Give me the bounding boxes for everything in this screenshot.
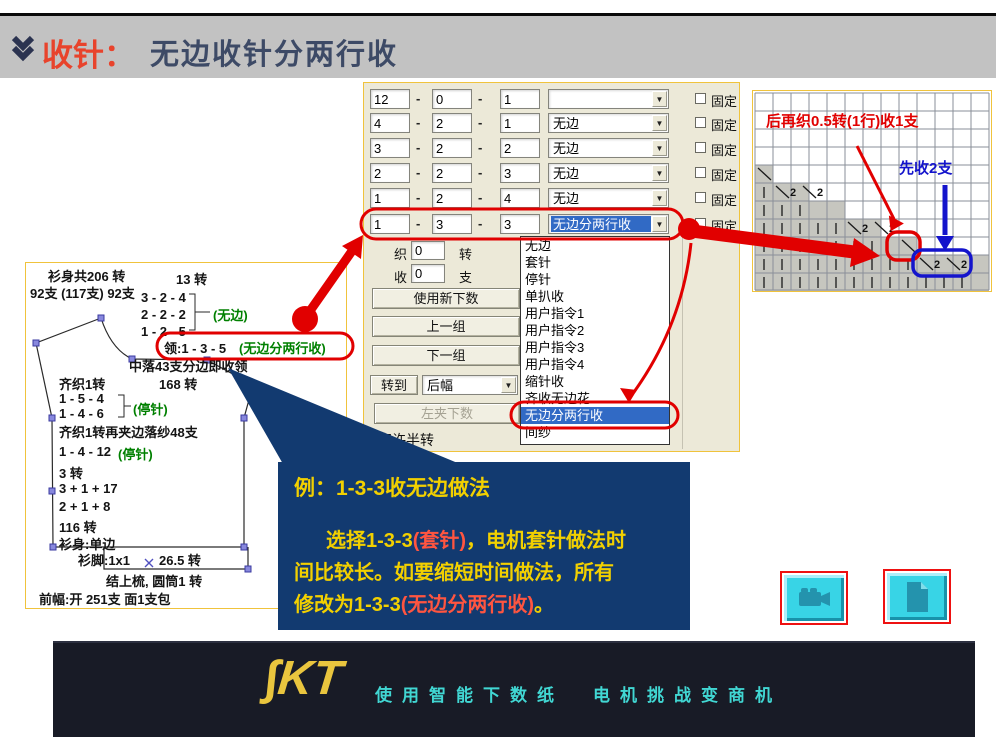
callout-text: 修改为1-3-3 — [294, 594, 401, 616]
method-dropdown-list: 无边 套针 停针 单扒收 用户指令1 用户指令2 用户指令3 用户指令4 缩针收… — [520, 236, 670, 445]
pattern-stitch-counts: 92支 (117支) 92支 — [30, 283, 135, 302]
grid-2-label: 2 — [817, 187, 823, 199]
red-arrowhead-up — [342, 235, 363, 259]
fixed-checkbox[interactable] — [695, 142, 706, 153]
fixed-label: 固定 — [711, 91, 737, 110]
grid-blue-note: 先收2支 — [899, 157, 952, 178]
dropdown-item[interactable]: 无边 — [521, 237, 669, 254]
grid-2-label: 2 — [961, 259, 967, 271]
dropdown-item[interactable]: 用户指令1 — [521, 305, 669, 322]
step-input-c[interactable] — [500, 188, 540, 208]
dropdown-item[interactable]: 停针 — [521, 271, 669, 288]
combobox-arrow-icon[interactable]: ▼ — [501, 377, 516, 393]
use-new-sheet-button[interactable]: 使用新下数 — [372, 288, 520, 309]
fixed-checkbox[interactable] — [695, 218, 706, 229]
pattern-mid-drop: 中落43支分边即收领 — [129, 356, 247, 375]
video-button[interactable] — [780, 571, 848, 625]
separator: - — [478, 115, 482, 130]
combobox-value: 无边 — [551, 190, 651, 206]
step-input-a[interactable] — [370, 89, 410, 109]
skt-logo: ∫KT — [262, 651, 345, 706]
combobox-selected-value: 无边分两行收 — [551, 216, 651, 232]
method-combobox[interactable]: ▼ — [548, 89, 669, 109]
combobox-arrow-icon[interactable]: ▼ — [652, 216, 667, 232]
pattern-hem-rib: 衫脚:1x1 — [78, 550, 130, 569]
grid-red-note: 后再织0.5转(1行)收1支 — [766, 110, 944, 131]
pattern-step-1412: 1 - 4 - 12 — [59, 444, 111, 459]
fixed-label: 固定 — [711, 190, 737, 209]
separator: - — [416, 165, 420, 180]
page-title: 无边收针分两行收 — [150, 31, 398, 73]
dropdown-item[interactable]: 单扒收 — [521, 288, 669, 305]
pattern-step-125: 1 - 2 - 5 — [141, 324, 186, 339]
pattern-168-turns: 168 转 — [159, 374, 197, 393]
page-title-keyword: 收针： — [42, 30, 135, 75]
pattern-step-146: 1 - 4 - 6 — [59, 406, 104, 421]
dropdown-item[interactable]: 缩针收 — [521, 373, 669, 390]
example-callout: 例：1-3-3收无边做法 选择1-3-3(套针)，电机套针做法时 间比较长。如要… — [278, 462, 690, 630]
pattern-even-knit-2: 齐织1转再夹边落纱48支 — [59, 422, 198, 441]
dropdown-item[interactable]: 用户指令3 — [521, 339, 669, 356]
combobox-arrow-icon[interactable]: ▼ — [652, 190, 667, 206]
dialog-divider — [682, 235, 683, 449]
allow-half-turn-label: 容许半转 — [378, 430, 434, 450]
fixed-checkbox[interactable] — [695, 117, 706, 128]
step-input-b[interactable] — [432, 188, 472, 208]
pattern-front-cast-on: 前幅:开 251支 面1支包 — [39, 589, 170, 608]
left-clamp-button-disabled: 左夹下数 — [374, 403, 520, 424]
step-input-c[interactable] — [500, 214, 540, 234]
separator: - — [478, 216, 482, 231]
title-bar: 收针： 无边收针分两行收 — [0, 16, 996, 78]
fixed-label: 固定 — [711, 115, 737, 134]
separator: - — [416, 115, 420, 130]
step-input-c[interactable] — [500, 113, 540, 133]
step-input-b[interactable] — [432, 113, 472, 133]
method-combobox[interactable]: 无边 ▼ — [548, 163, 669, 183]
callout-line4: 修改为1-3-3(无边分两行收)。 — [294, 588, 554, 617]
step-input-c[interactable] — [500, 163, 540, 183]
callout-line3: 间比较长。如要缩短时间做法，所有 — [294, 556, 614, 585]
combobox-value — [551, 91, 651, 107]
separator: - — [478, 140, 482, 155]
decrease-label: 收 — [394, 267, 407, 286]
dropdown-item[interactable]: 套针 — [521, 254, 669, 271]
step-input-b[interactable] — [432, 214, 472, 234]
footer-slogan-1: 使用智能下数纸 — [375, 681, 564, 706]
step-input-a[interactable] — [370, 113, 410, 133]
step-input-b[interactable] — [432, 138, 472, 158]
fixed-checkbox[interactable] — [695, 93, 706, 104]
footer-bar: ∫KT 使用智能下数纸 电机挑战变商机 — [53, 641, 975, 737]
combobox-arrow-icon[interactable]: ▼ — [652, 165, 667, 181]
document-button[interactable] — [883, 569, 951, 624]
step-input-c[interactable] — [500, 89, 540, 109]
separator: - — [416, 216, 420, 231]
pattern-wubian-note: (无边) — [213, 305, 248, 324]
combobox-value: 后幅 — [425, 377, 500, 393]
previous-group-button[interactable]: 上一组 — [372, 316, 520, 337]
weave-label: 织 — [394, 244, 407, 263]
pattern-tingzhen-note-1: (停针) — [133, 399, 168, 418]
method-combobox[interactable]: 无边 ▼ — [548, 188, 669, 208]
pattern-13-turns: 13 转 — [176, 269, 207, 288]
pattern-hem-turns: 26.5 转 — [159, 550, 201, 569]
pattern-neck-method: (无边分两行收) — [239, 338, 326, 357]
step-input-a[interactable] — [370, 188, 410, 208]
callout-text: ，电机套针做法时 — [466, 530, 626, 552]
separator: - — [416, 190, 420, 205]
next-group-button[interactable]: 下一组 — [372, 345, 520, 366]
combobox-value: 无边 — [551, 115, 651, 131]
pattern-step-218: 2 + 1 + 8 — [59, 499, 110, 514]
callout-text: 选择1-3-3 — [326, 530, 413, 552]
video-camera-icon — [795, 585, 833, 611]
grid-2-label: 2 — [790, 187, 796, 199]
separator: - — [416, 91, 420, 106]
step-input-b[interactable] — [432, 163, 472, 183]
combobox-arrow-icon[interactable]: ▼ — [652, 115, 667, 131]
combobox-arrow-icon[interactable]: ▼ — [652, 140, 667, 156]
dropdown-item[interactable]: 齐收无边花 — [521, 390, 669, 407]
pattern-3-turns: 3 转 — [59, 463, 83, 482]
weave-unit-label: 转 — [459, 244, 472, 263]
grid-2-label: 2 — [862, 223, 868, 235]
callout-red-text: (套针) — [413, 530, 466, 552]
pattern-step-222: 2 - 2 - 2 — [141, 307, 186, 322]
weave-turns-input[interactable] — [411, 241, 445, 260]
decrease-unit-label: 支 — [459, 267, 472, 286]
pattern-step-154: 1 - 5 - 4 — [59, 391, 104, 406]
step-input-b[interactable] — [432, 89, 472, 109]
step-input-c[interactable] — [500, 138, 540, 158]
method-combobox[interactable]: 无边 ▼ — [548, 113, 669, 133]
combobox-arrow-icon[interactable]: ▼ — [652, 91, 667, 107]
dropdown-item-selected[interactable]: 无边分两行收 — [521, 407, 669, 424]
dropdown-item[interactable]: 用户指令4 — [521, 356, 669, 373]
separator: - — [416, 140, 420, 155]
pattern-tingzhen-note-2: (停针) — [118, 444, 153, 463]
fixed-label: 固定 — [711, 140, 737, 159]
double-chevron-down-icon — [10, 34, 36, 64]
fixed-checkbox[interactable] — [695, 192, 706, 203]
step-input-a[interactable] — [370, 138, 410, 158]
callout-text: 。 — [534, 594, 554, 616]
separator: - — [478, 190, 482, 205]
step-input-a[interactable] — [370, 163, 410, 183]
decrease-stitches-input[interactable] — [411, 264, 445, 283]
goto-target-combobox[interactable]: 后幅 ▼ — [422, 375, 518, 395]
pattern-step-324: 3 - 2 - 4 — [141, 290, 186, 305]
callout-red-text: (无边分两行收) — [401, 594, 534, 616]
footer-slogan-2: 电机挑战变商机 — [593, 681, 782, 706]
fixed-label: 固定 — [711, 216, 737, 235]
fixed-checkbox[interactable] — [695, 167, 706, 178]
method-combobox-open[interactable]: 无边分两行收 ▼ — [548, 214, 669, 234]
dropdown-item[interactable]: 用户指令2 — [521, 322, 669, 339]
separator: - — [478, 165, 482, 180]
combobox-value: 无边 — [551, 140, 651, 156]
separator: - — [478, 91, 482, 106]
combobox-value: 无边 — [551, 165, 651, 181]
method-combobox[interactable]: 无边 ▼ — [548, 138, 669, 158]
slide: 收针： 无边收针分两行收 — [0, 0, 996, 756]
pattern-neck-step: 领:1 - 3 - 5 — [164, 338, 226, 357]
fixed-label: 固定 — [711, 165, 737, 184]
pattern-comb-note: 结上梳, 圆筒1 转 — [106, 571, 202, 590]
dropdown-item[interactable]: 间纱 — [521, 424, 669, 441]
step-input-a[interactable] — [370, 214, 410, 234]
document-icon — [904, 581, 930, 613]
callout-line2: 选择1-3-3(套针)，电机套针做法时 — [326, 524, 626, 553]
grid-2-label: 2 — [934, 259, 940, 271]
pattern-step-3117: 3 + 1 + 17 — [59, 481, 118, 496]
goto-button[interactable]: 转到 — [370, 375, 418, 395]
callout-title: 例：1-3-3收无边做法 — [294, 472, 490, 502]
